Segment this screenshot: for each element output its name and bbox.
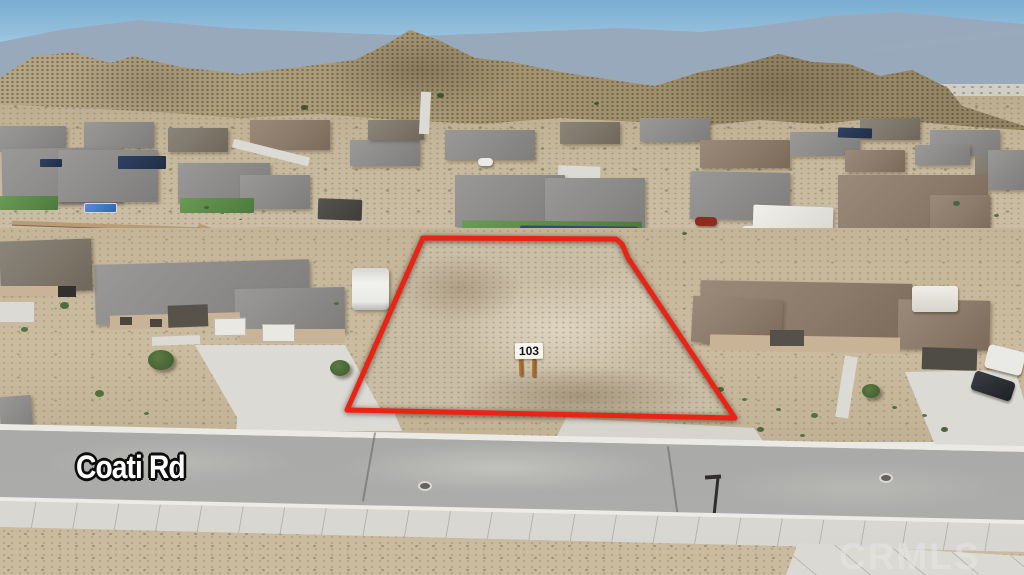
sign-post [519,358,524,376]
lawn [0,196,58,210]
tree [330,360,350,376]
entry-porch [168,304,209,327]
house-roof [915,145,970,165]
house-roof [445,130,535,160]
rv-trailer [912,286,958,312]
house-roof [988,150,1024,190]
lot-number-text: 103 [519,344,539,358]
house-roof [560,122,620,144]
manhole-cover [879,473,893,483]
house-wall [710,334,900,353]
house-roof [368,120,424,140]
tree [862,384,880,398]
rv-motorhome [352,268,389,310]
desert-shrubs [0,0,9,7]
walkway [152,335,200,346]
swimming-pool [84,203,117,213]
house-roof [168,128,228,152]
trash-bins [58,286,76,297]
patio-slab [0,302,34,322]
aerial-photo: 103 Coati Rd CRMLS [0,0,1024,575]
garage-door [262,324,295,342]
entry-porch [770,330,804,346]
house-roof [640,118,710,142]
window [120,317,132,325]
house-roof [84,122,154,148]
garage-door [214,318,246,337]
house-roof [845,150,905,172]
lot-number-sign: 103 [515,343,543,359]
house-roof [350,140,420,166]
solar-panel [40,159,62,167]
gazebo [318,198,363,221]
white-van [478,158,493,166]
solar-panel [118,156,166,169]
crmls-watermark: CRMLS [839,536,981,575]
house-roof [700,140,790,168]
manhole-cover [418,481,432,491]
street-name-label: Coati Rd [76,449,185,486]
red-car [695,217,717,226]
solar-panel [838,127,872,138]
garage-door [922,347,978,371]
lawn [180,198,254,213]
window [150,319,162,327]
tree [148,350,174,370]
sign-post [532,359,536,377]
